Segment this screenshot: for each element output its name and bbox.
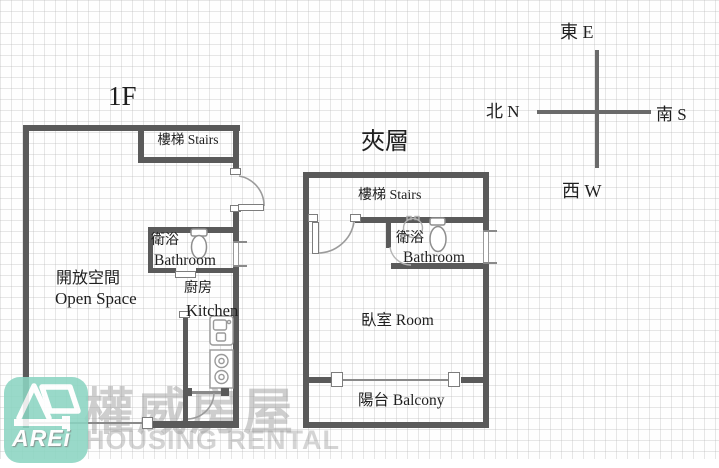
fixtures-layer	[0, 0, 719, 459]
f1-stove-icon	[210, 350, 233, 388]
mezz-door-jamb-right	[350, 214, 361, 222]
f1-stairs-label: 樓梯 Stairs	[138, 133, 238, 148]
mezz-bathroom-label-zh: 衛浴	[396, 231, 424, 246]
f1-title: 1F	[108, 82, 137, 112]
mezz-toilet-icon	[430, 218, 446, 252]
f1-kitchen-door-jamb-right	[221, 388, 229, 396]
f1-bath-door-leaf	[175, 271, 196, 278]
mezz-balcony-label: 陽台 Balcony	[358, 392, 445, 409]
mezz-door-jamb-left	[308, 214, 318, 222]
f1-bathroom-label-zh: 衛浴	[151, 233, 179, 248]
f1-kitchen-door-jamb-left	[184, 388, 192, 396]
compass-south-label: 南 S	[656, 100, 687, 125]
agency-logo: AREi	[4, 377, 88, 463]
f1-open-space-label-zh: 開放空間	[56, 270, 120, 288]
compass-east-label: 東 E	[560, 18, 594, 44]
logo-brand-text: AREi	[12, 425, 71, 452]
mezz-door-leaf	[312, 222, 319, 254]
f1-bottom-window-marker	[142, 417, 153, 429]
floorplan-canvas: 權威房屋 HOUSING RENTAL	[0, 0, 719, 459]
mezz-title: 夾層	[361, 129, 409, 155]
f1-open-space-label-en: Open Space	[55, 290, 137, 309]
f1-entry-door-leaf	[238, 204, 264, 211]
f1-kitchen-door-arc	[188, 393, 214, 419]
f1-sink-icon	[210, 316, 233, 345]
f1-bathroom-label-en: Bathroom	[154, 252, 216, 269]
f1-kitchen-label-en: Kitchen	[186, 302, 238, 320]
mezz-door-arc	[317, 222, 354, 253]
f1-kitchen-label-zh: 廚房	[184, 281, 212, 296]
f1-entry-door-arc	[239, 176, 264, 206]
f1-entry-door-jamb-top	[230, 168, 241, 175]
mezz-stairs-label: 樓梯 Stairs	[358, 188, 421, 203]
mezz-bathroom-label-en: Bathroom	[403, 249, 465, 266]
mezz-balcony-post-right	[448, 372, 460, 387]
mezz-balcony-post-left	[331, 372, 343, 387]
compass-north-label: 北 N	[486, 97, 520, 122]
mezz-bedroom-label: 臥室 Room	[361, 312, 434, 329]
compass-west-label: 西 W	[562, 177, 602, 203]
